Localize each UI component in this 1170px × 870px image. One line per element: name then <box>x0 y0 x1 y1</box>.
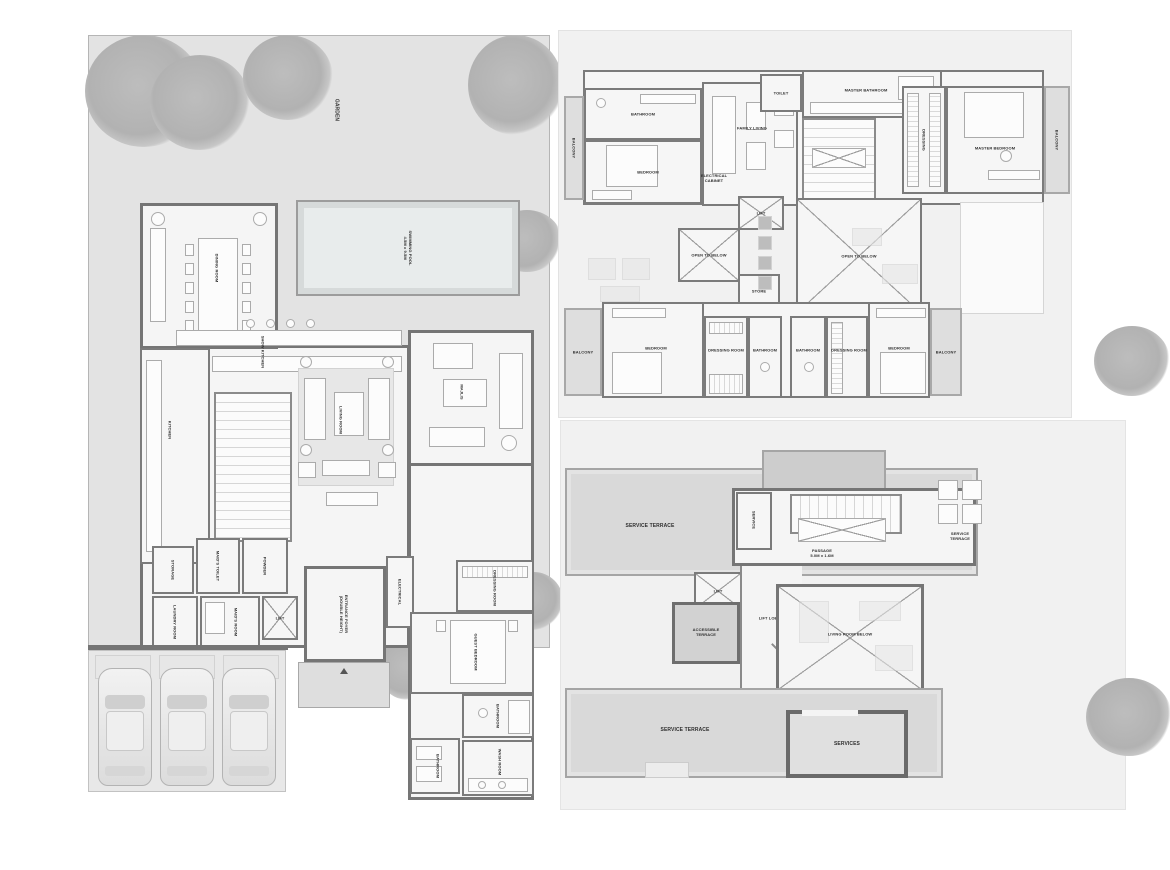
service-terrace-top-label: SERVICE TERRACE <box>626 523 675 530</box>
service-terrace-right-label: SERVICE TERRACE <box>950 531 970 541</box>
terrace-step <box>645 762 689 778</box>
outdoor-seat <box>938 480 958 500</box>
ghost-furniture <box>859 601 901 621</box>
living-room-below-label: LIVING ROOM BELOW <box>828 631 873 636</box>
outdoor-seat <box>938 504 958 524</box>
services-opening <box>802 710 858 716</box>
tree <box>1086 678 1170 756</box>
tree <box>1094 326 1170 396</box>
living-room-below <box>776 584 924 692</box>
passage-label: PASSAGE 5.0M x 1.6M <box>810 548 833 558</box>
ghost-furniture <box>875 645 913 671</box>
service-terrace-bottom-label: SERVICE TERRACE <box>661 727 710 734</box>
roof-plan: SERVICE TERRACE PASSAGE 5.0M x 1.6M SERV… <box>0 0 1170 870</box>
services-label: SERVICES <box>834 741 860 748</box>
stair-landing <box>798 518 886 542</box>
outdoor-seat <box>962 480 982 500</box>
lift-label: LIFT <box>714 588 723 593</box>
ghost-furniture <box>799 601 829 643</box>
outdoor-seat <box>962 504 982 524</box>
accessible-terrace-label: ACCESSIBLE TERRACE <box>693 627 720 637</box>
service-label: SERVICE <box>751 511 756 529</box>
